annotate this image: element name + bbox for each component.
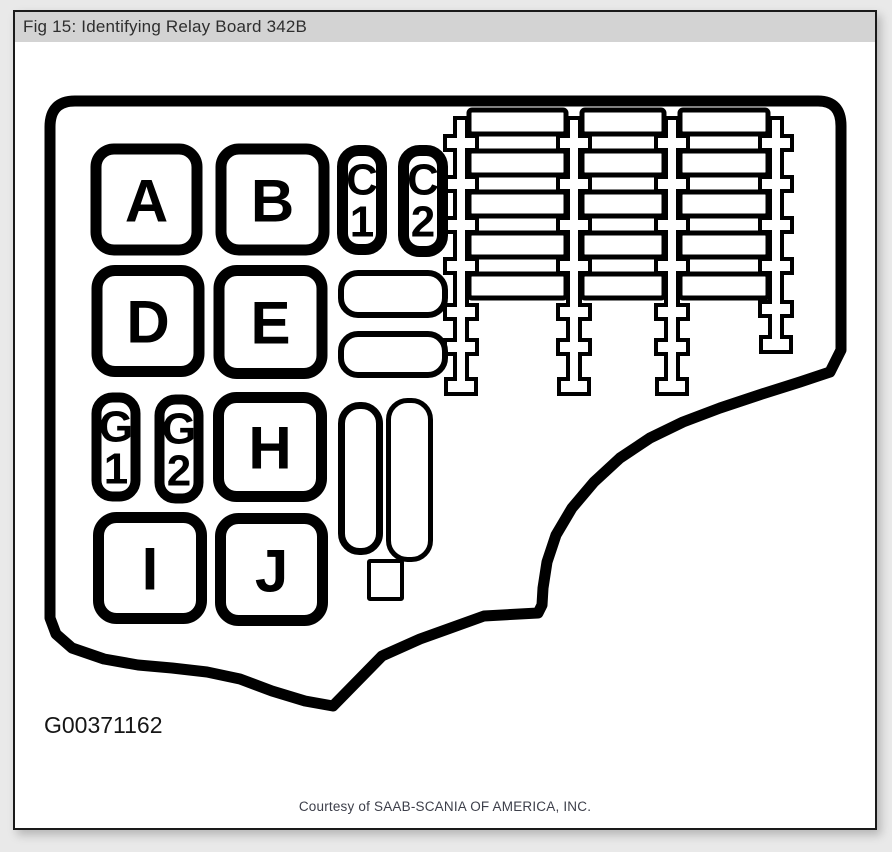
relay-b: B xyxy=(221,149,324,250)
relay-d: D xyxy=(97,271,199,372)
blank-slot-horizontal-2 xyxy=(341,334,445,375)
fuse xyxy=(582,233,664,257)
relay-h-label: H xyxy=(248,415,291,482)
relay-b-label: B xyxy=(251,168,294,235)
fuse xyxy=(680,233,768,257)
fuse xyxy=(680,110,768,134)
relay-a-label: A xyxy=(125,168,168,235)
fuse xyxy=(582,110,664,134)
relay-e: E xyxy=(219,271,322,374)
fuse xyxy=(582,274,664,298)
fuse xyxy=(469,151,566,175)
relay-g1: G 1 xyxy=(97,398,136,497)
figure-code: G00371162 xyxy=(44,712,163,738)
fuse xyxy=(469,233,566,257)
fuse xyxy=(582,151,664,175)
relay-c2-label-bottom: 2 xyxy=(411,198,435,247)
fuse xyxy=(469,110,566,134)
blank-slot-square xyxy=(369,561,402,599)
footer-credit: Courtesy of SAAB-SCANIA OF AMERICA, INC. xyxy=(15,799,875,814)
relay-i: I xyxy=(99,518,202,619)
figure-title: Fig 15: Identifying Relay Board 342B xyxy=(23,17,307,37)
relay-c1-label-bottom: 1 xyxy=(350,198,374,247)
relay-i-label: I xyxy=(142,536,159,603)
relay-a: A xyxy=(96,149,197,250)
relay-j-label: J xyxy=(255,538,288,605)
fuse xyxy=(469,192,566,216)
relay-c2: C 2 xyxy=(404,151,443,252)
relay-e-label: E xyxy=(250,290,290,357)
figure-window: Fig 15: Identifying Relay Board 342B xyxy=(13,10,877,830)
relay-g1-label-bottom: 1 xyxy=(104,445,128,494)
relay-c1: C 1 xyxy=(343,151,382,250)
blank-slot-horizontal-1 xyxy=(341,273,445,315)
relay-j: J xyxy=(221,519,323,621)
relay-g2: G 2 xyxy=(160,400,199,499)
relay-h: H xyxy=(219,398,322,497)
figure-title-bar: Fig 15: Identifying Relay Board 342B xyxy=(15,12,875,42)
relay-d-label: D xyxy=(126,289,169,356)
fuse xyxy=(680,151,768,175)
relay-board-diagram: A B C 1 C 2 D E G 1 G xyxy=(15,42,875,788)
relay-g2-label-bottom: 2 xyxy=(167,447,191,496)
fuse xyxy=(582,192,664,216)
fuse xyxy=(680,192,768,216)
blank-slot-vertical-2 xyxy=(389,401,431,560)
blank-slot-vertical-1 xyxy=(342,406,380,552)
fuse xyxy=(680,274,768,298)
fuse xyxy=(469,274,566,298)
